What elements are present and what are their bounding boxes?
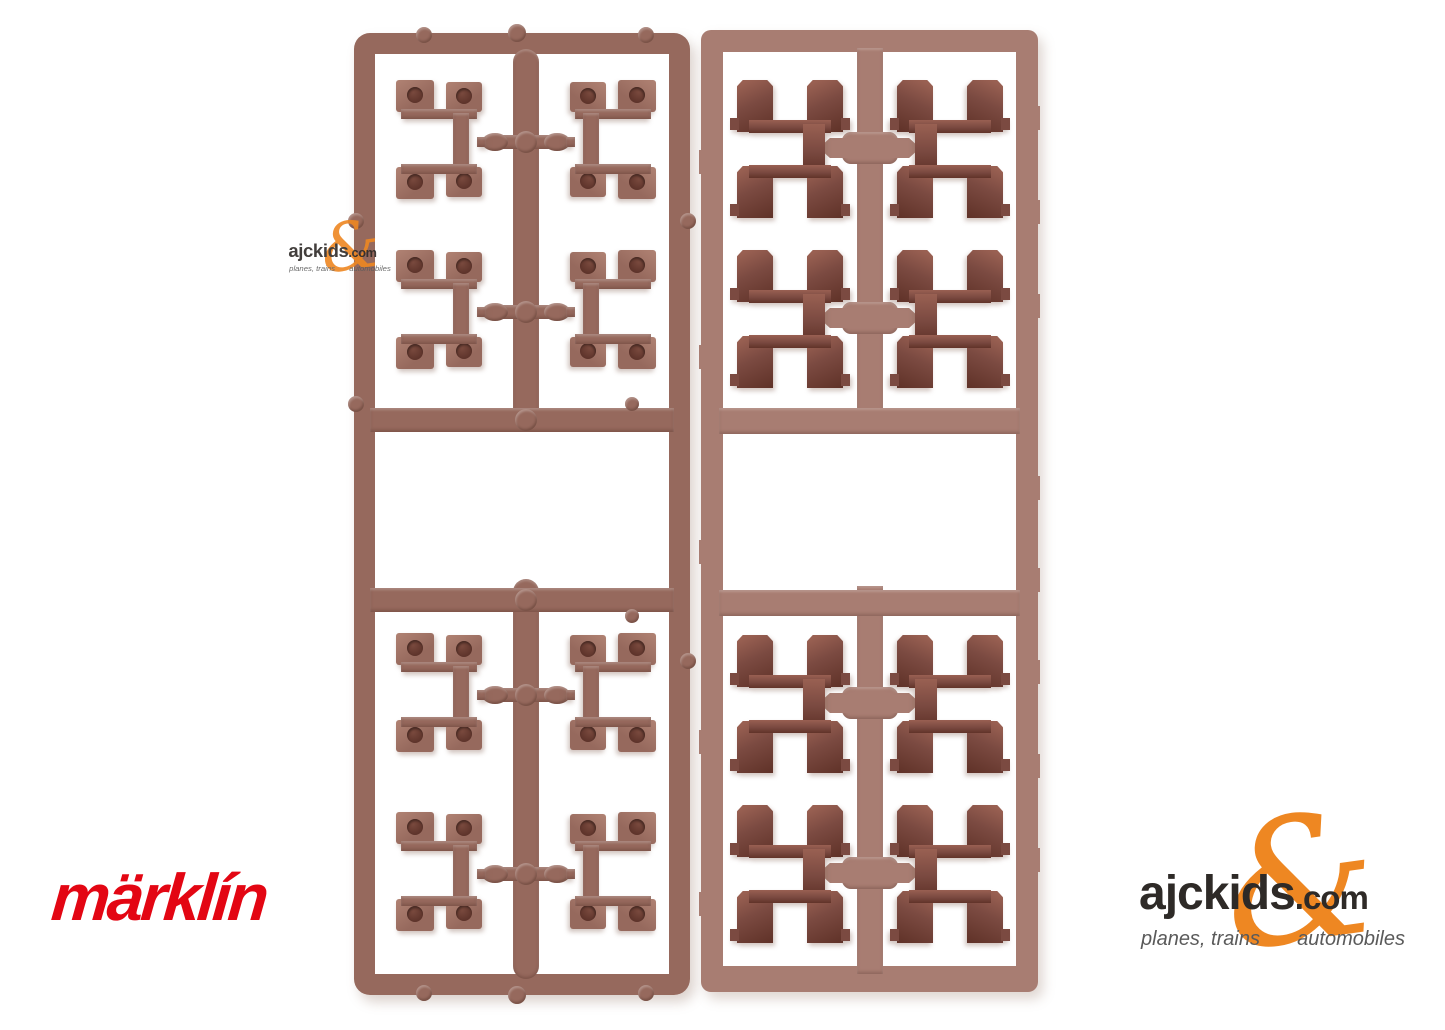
watermark-domain: .com	[348, 246, 376, 261]
sprue-part	[897, 250, 1003, 388]
part-bar	[909, 165, 991, 178]
sprue-part	[737, 805, 843, 943]
pad-hole	[456, 258, 472, 274]
sprue-gate	[477, 869, 486, 879]
part-foot	[1001, 759, 1010, 771]
part-bar	[575, 896, 651, 906]
pad-hole	[629, 344, 645, 360]
part-foot	[890, 673, 899, 685]
part-foot	[730, 929, 739, 941]
sprue-part	[396, 812, 486, 931]
part-bar	[749, 165, 831, 178]
pad-hole	[456, 88, 472, 104]
part-foot	[1001, 929, 1010, 941]
part-foot	[730, 204, 739, 216]
part-foot	[1001, 843, 1010, 855]
part-foot	[841, 673, 850, 685]
ejector-bump	[348, 396, 364, 412]
pad-hole	[407, 819, 423, 835]
part-stem	[583, 845, 599, 903]
part-stem	[453, 283, 469, 341]
part-bar	[749, 890, 831, 903]
rail-tab	[1031, 476, 1040, 500]
watermark-tagline-right: automobiles	[349, 265, 391, 274]
pad-hole	[629, 727, 645, 743]
part-pad	[396, 633, 434, 665]
pad-hole	[407, 257, 423, 273]
part-stem	[583, 283, 599, 341]
part-foot	[1001, 288, 1010, 300]
ejector-bump	[416, 985, 432, 1001]
part-bar	[749, 720, 831, 733]
rail-tab	[699, 345, 708, 369]
watermark-tagline: planes, trains automobiles	[289, 265, 391, 274]
part-pad	[618, 250, 656, 282]
sprue-part	[396, 80, 486, 199]
ejector-bump	[515, 131, 537, 153]
ejector-bump	[508, 24, 526, 42]
part-stem	[453, 113, 469, 171]
pad-hole	[580, 88, 596, 104]
part-foot	[841, 843, 850, 855]
ejector-bump	[515, 301, 537, 323]
part-pad	[396, 812, 434, 844]
pad-hole	[580, 641, 596, 657]
part-foot	[841, 759, 850, 771]
part-pad	[570, 814, 606, 844]
part-pad	[570, 252, 606, 282]
part-foot	[1001, 118, 1010, 130]
sprue-crossbar	[719, 590, 1020, 616]
part-bar	[401, 896, 477, 906]
part-foot	[890, 374, 899, 386]
rail-tab	[1031, 754, 1040, 778]
part-foot	[841, 374, 850, 386]
pad-hole	[407, 906, 423, 922]
marklin-logo: märklín	[49, 864, 269, 930]
part-foot	[841, 929, 850, 941]
rail-tab	[699, 150, 708, 174]
sprue-part	[897, 80, 1003, 218]
part-foot	[890, 118, 899, 130]
sprue-part	[737, 250, 843, 388]
part-bar	[909, 720, 991, 733]
pad-hole	[456, 641, 472, 657]
pad-hole	[580, 173, 596, 189]
part-foot	[730, 118, 739, 130]
sprue-runner	[857, 586, 883, 974]
sprue-runner	[513, 579, 539, 979]
pad-hole	[407, 727, 423, 743]
part-bar	[909, 890, 991, 903]
part-foot	[841, 118, 850, 130]
part-pad	[446, 814, 482, 844]
pad-hole	[580, 726, 596, 742]
rail-tab	[1031, 106, 1040, 130]
pad-hole	[456, 343, 472, 359]
part-foot	[890, 843, 899, 855]
ejector-bump	[515, 589, 537, 611]
part-foot	[890, 204, 899, 216]
sprue-part	[396, 633, 486, 752]
pad-hole	[407, 344, 423, 360]
pad-hole	[456, 726, 472, 742]
sprue-gate	[477, 307, 486, 317]
pad-hole	[629, 87, 645, 103]
sprue-runner	[513, 49, 539, 421]
sprue-crossbar	[719, 408, 1020, 434]
ejector-bump	[508, 986, 526, 1004]
ejector-bump	[680, 213, 696, 229]
retailer-wordmark: ajckids.com	[1139, 866, 1368, 921]
part-pad	[570, 635, 606, 665]
part-pad	[618, 633, 656, 665]
sprue-part	[897, 635, 1003, 773]
retailer-tagline-right: automobiles	[1297, 928, 1405, 951]
sprue-part	[897, 805, 1003, 943]
part-pad	[446, 82, 482, 112]
pad-hole	[456, 173, 472, 189]
pad-hole	[629, 906, 645, 922]
part-pad	[446, 252, 482, 282]
sprue-runner	[857, 48, 883, 416]
pad-hole	[407, 87, 423, 103]
part-foot	[1001, 673, 1010, 685]
retailer-tagline-left: planes, trains	[1141, 928, 1260, 951]
watermark-name: ajckids	[288, 241, 348, 262]
part-stem	[453, 845, 469, 903]
ejector-bump	[625, 397, 639, 411]
pad-hole	[580, 905, 596, 921]
sprue-part	[396, 250, 486, 369]
part-foot	[890, 929, 899, 941]
part-foot	[730, 843, 739, 855]
ejector-bump	[515, 409, 537, 431]
sprue-gate	[477, 690, 486, 700]
part-foot	[730, 673, 739, 685]
rail-tab	[1031, 660, 1040, 684]
ejector-bump	[680, 653, 696, 669]
rail-tab	[699, 892, 708, 916]
sprue-gate	[477, 137, 486, 147]
watermark-tagline-left: planes, trains	[289, 265, 335, 274]
retailer-domain: .com	[1295, 879, 1368, 917]
sprue-part	[566, 812, 656, 931]
part-foot	[841, 204, 850, 216]
part-bar	[401, 717, 477, 727]
ejector-bump	[625, 609, 639, 623]
part-bar	[401, 164, 477, 174]
ajckids-logo: & ajckids.com planes, trains automobiles	[1125, 828, 1425, 978]
product-photo-stage: & ajckids.com planes, trains automobiles…	[0, 0, 1445, 1030]
sprue-gate	[566, 307, 575, 317]
pad-hole	[580, 820, 596, 836]
ejector-bump	[638, 27, 654, 43]
part-foot	[1001, 374, 1010, 386]
part-pad	[618, 80, 656, 112]
left-sprue	[354, 33, 690, 995]
rail-tab	[1031, 848, 1040, 872]
pad-hole	[580, 343, 596, 359]
part-pad	[570, 82, 606, 112]
right-sprue	[701, 30, 1038, 992]
sprue-part	[737, 80, 843, 218]
part-pad	[396, 250, 434, 282]
part-foot	[890, 759, 899, 771]
pad-hole	[456, 905, 472, 921]
pad-hole	[456, 820, 472, 836]
part-stem	[583, 666, 599, 724]
rail-tab	[1031, 200, 1040, 224]
rail-tab	[699, 540, 708, 564]
part-bar	[749, 335, 831, 348]
sprue-gate	[566, 137, 575, 147]
sprue-part	[566, 633, 656, 752]
part-pad	[396, 80, 434, 112]
part-foot	[1001, 204, 1010, 216]
ajckids-watermark: & ajckids.com planes, trains automobiles	[283, 226, 399, 284]
part-bar	[575, 717, 651, 727]
part-foot	[841, 288, 850, 300]
part-foot	[730, 759, 739, 771]
part-pad	[618, 812, 656, 844]
sprue-gate	[566, 869, 575, 879]
part-bar	[575, 164, 651, 174]
sprue-part	[737, 635, 843, 773]
sprue-part	[566, 250, 656, 369]
pad-hole	[407, 640, 423, 656]
part-foot	[730, 374, 739, 386]
pad-hole	[629, 257, 645, 273]
part-bar	[401, 334, 477, 344]
rail-tab	[1031, 294, 1040, 318]
pad-hole	[629, 174, 645, 190]
retailer-tagline: planes, trains automobiles	[1141, 928, 1405, 951]
pad-hole	[580, 258, 596, 274]
part-bar	[909, 335, 991, 348]
retailer-name: ajckids	[1139, 866, 1295, 921]
watermark-wordmark: ajckids.com	[288, 241, 376, 262]
part-bar	[575, 334, 651, 344]
rail-tab	[699, 730, 708, 754]
part-foot	[890, 288, 899, 300]
part-pad	[446, 635, 482, 665]
pad-hole	[629, 640, 645, 656]
ejector-bump	[638, 985, 654, 1001]
ejector-bump	[416, 27, 432, 43]
rail-tab	[1031, 568, 1040, 592]
sprue-gate	[566, 690, 575, 700]
part-stem	[583, 113, 599, 171]
pad-hole	[407, 174, 423, 190]
pad-hole	[629, 819, 645, 835]
ejector-bump	[515, 684, 537, 706]
part-stem	[453, 666, 469, 724]
ejector-bump	[515, 863, 537, 885]
sprue-part	[566, 80, 656, 199]
part-foot	[730, 288, 739, 300]
